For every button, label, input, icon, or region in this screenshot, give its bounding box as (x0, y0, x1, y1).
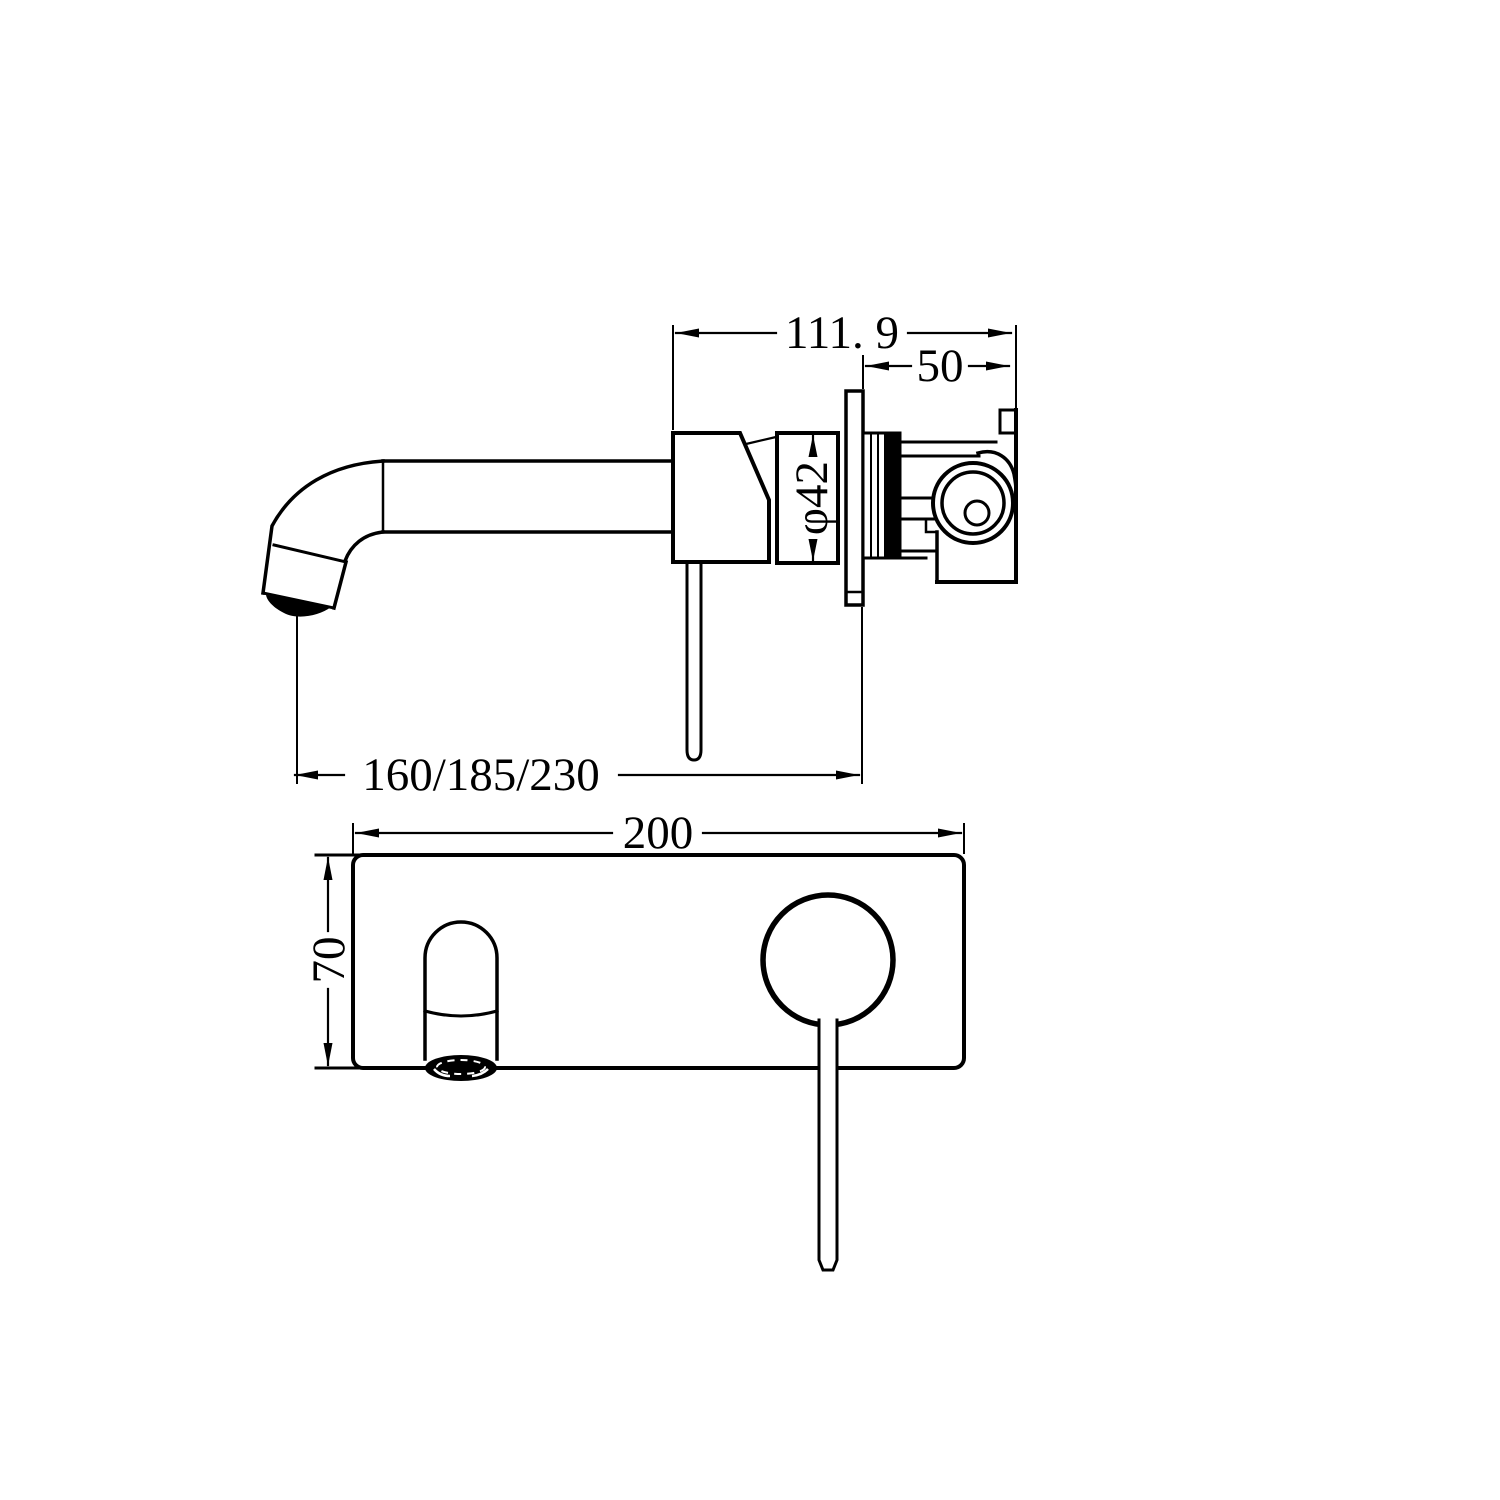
side-handle-lever (687, 563, 701, 760)
front-handle-knob (763, 895, 893, 1025)
dimension-spout-reach: 160/185/230 (295, 608, 862, 801)
arrow-left-icon (676, 329, 699, 338)
body-chamfer-line (746, 437, 776, 444)
front-spout-capsule (425, 922, 497, 1059)
technical-drawing: 111. 9 50 φ42 160/185/230 (0, 0, 1500, 1500)
side-view: 111. 9 50 φ42 160/185/230 (263, 307, 1016, 801)
dim-body-diameter-label: φ42 (786, 461, 838, 535)
dim-spout-reach-label: 160/185/230 (362, 749, 600, 801)
arrow-right-icon (836, 771, 859, 780)
spout-tip-right-edge (334, 562, 346, 608)
wall-plate-profile (846, 391, 863, 605)
arrow-down-icon (324, 1043, 333, 1066)
arrow-left-icon (866, 362, 889, 371)
front-view: 200 70 (303, 807, 964, 1270)
front-spout (425, 922, 497, 1081)
dim-plate-height-label: 70 (303, 937, 355, 984)
cartridge-pin-circle (965, 501, 989, 525)
front-aerator (425, 1055, 497, 1081)
dim-plate-width-label: 200 (623, 807, 694, 859)
spout-outer-bend (263, 461, 383, 593)
spout-inner-bend (345, 532, 383, 561)
wall-plate-side (846, 391, 863, 605)
arrow-left-icon (356, 829, 379, 838)
inwall-body (863, 433, 900, 558)
body-block (673, 433, 769, 562)
dim-behind-wall-label: 50 (917, 340, 964, 392)
arrow-right-icon (988, 329, 1011, 338)
arrow-right-icon (986, 362, 1009, 371)
dim-overall-depth-label: 111. 9 (785, 307, 899, 359)
front-handle-lever (819, 1020, 837, 1270)
dimension-plate-width: 200 (353, 807, 964, 859)
arrow-right-icon (938, 829, 961, 838)
inwall-seal-band (884, 434, 899, 557)
drawing-page: 111. 9 50 φ42 160/185/230 (0, 0, 1500, 1500)
arrow-left-icon (295, 771, 318, 780)
front-handle (763, 895, 893, 1270)
spout-aerator-shadow (266, 595, 331, 617)
arrow-up-icon (324, 857, 333, 880)
side-spout (263, 461, 672, 617)
spout-tip-separation-line (274, 545, 346, 562)
valve-assembly (900, 410, 1016, 582)
valve-bracket-notch (1000, 410, 1016, 433)
